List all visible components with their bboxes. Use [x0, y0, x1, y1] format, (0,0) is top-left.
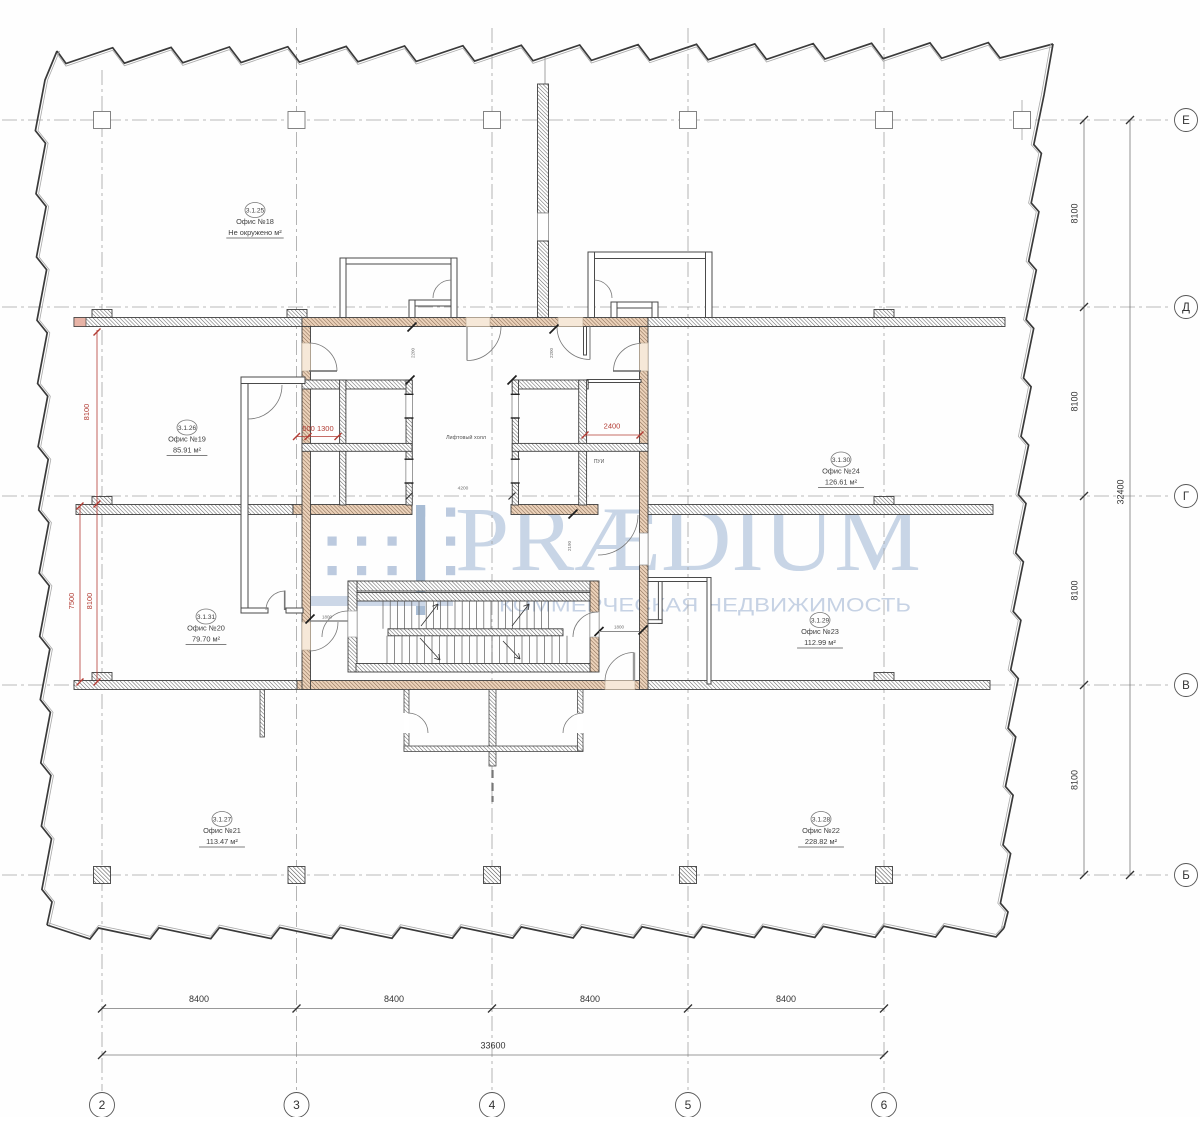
svg-text:2: 2 [99, 1098, 106, 1112]
svg-text:Офис №18: Офис №18 [236, 217, 274, 226]
svg-text:Офис №23: Офис №23 [801, 627, 839, 636]
svg-text:В: В [1182, 680, 1190, 692]
svg-text:113.47 м²: 113.47 м² [206, 837, 238, 846]
svg-text:8100: 8100 [1070, 391, 1080, 411]
svg-text:8100: 8100 [1070, 580, 1080, 600]
svg-text:Е: Е [1182, 115, 1190, 127]
svg-text:8100: 8100 [1070, 203, 1080, 223]
svg-text:Офис №24: Офис №24 [822, 467, 860, 476]
svg-text:112.99 м²: 112.99 м² [804, 638, 836, 647]
svg-text:3.1.27: 3.1.27 [213, 817, 232, 824]
svg-text:6: 6 [881, 1098, 888, 1112]
svg-text:228.82 м²: 228.82 м² [805, 837, 838, 846]
svg-text:8400: 8400 [384, 994, 404, 1004]
svg-text:Г: Г [1183, 491, 1190, 503]
svg-text:Лифтовый холл: Лифтовый холл [446, 434, 486, 441]
svg-text:3.1.25: 3.1.25 [246, 208, 265, 215]
svg-text:4: 4 [489, 1098, 496, 1112]
svg-text:79.70 м²: 79.70 м² [192, 635, 221, 644]
svg-text:4200: 4200 [458, 486, 469, 492]
svg-text:3: 3 [293, 1098, 300, 1112]
svg-text:Офис №21: Офис №21 [203, 826, 241, 835]
svg-text:2190: 2190 [567, 540, 572, 551]
svg-text:3.1.29: 3.1.29 [811, 618, 830, 625]
svg-text:8100: 8100 [85, 593, 94, 610]
svg-text:1800: 1800 [614, 625, 625, 630]
svg-text:3.1.28: 3.1.28 [812, 817, 831, 824]
svg-text:3.1.26: 3.1.26 [178, 425, 197, 432]
svg-text:Не окружено м²: Не окружено м² [228, 228, 282, 237]
svg-text:ПУИ: ПУИ [594, 459, 605, 465]
svg-text:500 1300: 500 1300 [302, 424, 333, 433]
svg-text:2200: 2200 [411, 347, 416, 358]
svg-text:33600: 33600 [480, 1041, 505, 1051]
svg-text:85.91 м²: 85.91 м² [173, 446, 202, 455]
svg-text:Офис №20: Офис №20 [187, 624, 225, 633]
svg-text:Офис №22: Офис №22 [802, 826, 840, 835]
svg-text:Б: Б [1182, 870, 1190, 882]
svg-text:8100: 8100 [82, 404, 91, 421]
svg-text:8100: 8100 [1070, 770, 1080, 790]
svg-text:32400: 32400 [1116, 479, 1126, 504]
svg-text:Офис №19: Офис №19 [168, 435, 206, 444]
svg-text:126.61 м²: 126.61 м² [825, 478, 858, 487]
svg-text:3.1.30: 3.1.30 [832, 457, 851, 464]
svg-text:8400: 8400 [580, 994, 600, 1004]
svg-text:2200: 2200 [549, 347, 554, 358]
svg-text:5: 5 [685, 1098, 692, 1112]
svg-text:Д: Д [1182, 302, 1190, 314]
svg-text:3.1.31: 3.1.31 [197, 614, 216, 621]
svg-text:8400: 8400 [776, 994, 796, 1004]
svg-text:1800: 1800 [322, 615, 333, 620]
svg-text:7500: 7500 [67, 593, 76, 610]
svg-text:2400: 2400 [604, 422, 621, 431]
svg-text:8400: 8400 [189, 994, 209, 1004]
